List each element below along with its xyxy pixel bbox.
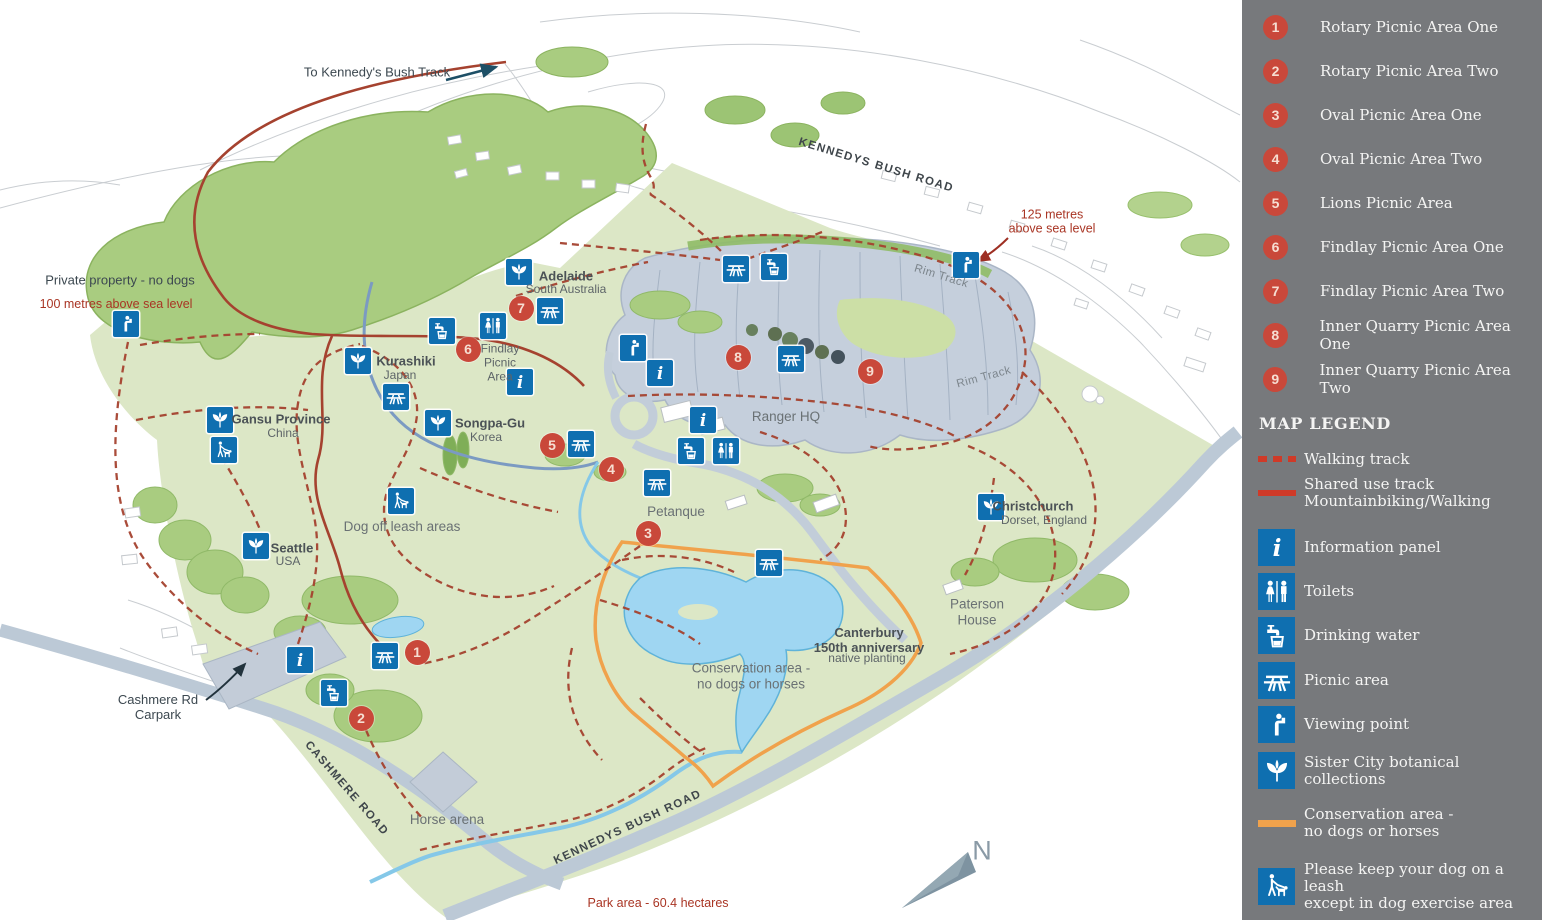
legend-item-botanic: Sister City botanical collections xyxy=(1242,752,1542,789)
legend-label: Drinking water xyxy=(1304,627,1419,644)
viewpoint-icon xyxy=(1258,706,1295,743)
legend-sidebar: 1Rotary Picnic Area One2Rotary Picnic Ar… xyxy=(1242,0,1542,920)
legend-item-viewpoint: Viewing point xyxy=(1242,706,1542,743)
botanic-icon xyxy=(1258,752,1295,789)
area-label: Findlay Picnic Area Two xyxy=(1320,282,1504,300)
area-number-badge: 2 xyxy=(1263,59,1288,84)
water-icon xyxy=(1258,617,1295,654)
map-legend-title: MAP LEGEND xyxy=(1259,414,1391,433)
picnic-area-legend-1: 1Rotary Picnic Area One xyxy=(1242,14,1542,40)
park-map-base-art xyxy=(0,0,1242,920)
area-label: Lions Picnic Area xyxy=(1320,194,1453,212)
area-label: Rotary Picnic Area One xyxy=(1320,18,1498,36)
picnic-area-legend-2: 2Rotary Picnic Area Two xyxy=(1242,58,1542,84)
legend-item-dog-leash: Please keep your dog on a leash except i… xyxy=(1242,867,1542,905)
legend-label: Conservation area - no dogs or horses xyxy=(1304,806,1453,840)
legend-item-toilets: Toilets xyxy=(1242,573,1542,610)
area-number-badge: 4 xyxy=(1263,147,1288,172)
legend-label: Walking track xyxy=(1304,451,1409,468)
area-number-badge: 1 xyxy=(1263,15,1288,40)
picnic-area-legend-7: 7Findlay Picnic Area Two xyxy=(1242,278,1542,304)
legend-item-walking-track: Walking track xyxy=(1242,449,1542,469)
map-canvas: 123456789 To Kennedy's Bush TrackKENNEDY… xyxy=(0,0,1242,920)
area-number-badge: 9 xyxy=(1263,367,1287,392)
area-label: Inner Quarry Picnic Area Two xyxy=(1319,361,1542,397)
legend-item-picnic: Picnic area xyxy=(1242,662,1542,699)
area-label: Inner Quarry Picnic Area One xyxy=(1320,317,1542,353)
legend-label: Information panel xyxy=(1304,539,1441,556)
legend-item-info: Information panel xyxy=(1242,529,1542,566)
area-label: Rotary Picnic Area Two xyxy=(1320,62,1499,80)
picnic-area-legend-5: 5Lions Picnic Area xyxy=(1242,190,1542,216)
area-label: Oval Picnic Area One xyxy=(1320,106,1482,124)
dog-leash-icon xyxy=(1258,868,1295,905)
picnic-area-legend-8: 8Inner Quarry Picnic Area One xyxy=(1242,322,1542,348)
area-number-badge: 8 xyxy=(1263,323,1288,348)
area-number-badge: 7 xyxy=(1263,279,1288,304)
area-number-badge: 5 xyxy=(1263,191,1288,216)
legend-item-conservation: Conservation area - no dogs or horses xyxy=(1242,804,1542,842)
legend-item-shared-track: Shared use track Mountainbiking/Walking xyxy=(1242,474,1542,512)
picnic-area-legend-9: 9Inner Quarry Picnic Area Two xyxy=(1242,366,1542,392)
picnic-area-legend-3: 3Oval Picnic Area One xyxy=(1242,102,1542,128)
area-number-badge: 3 xyxy=(1263,103,1288,128)
shared-track-swatch xyxy=(1258,490,1296,496)
legend-label: Shared use track Mountainbiking/Walking xyxy=(1304,476,1491,510)
walking-track-swatch xyxy=(1258,456,1296,462)
park-map-poster: 123456789 To Kennedy's Bush TrackKENNEDY… xyxy=(0,0,1542,920)
compass xyxy=(902,852,976,908)
legend-item-water: Drinking water xyxy=(1242,617,1542,654)
area-label: Oval Picnic Area Two xyxy=(1320,150,1482,168)
conservation-area-swatch xyxy=(1258,820,1296,827)
legend-label: Please keep your dog on a leash except i… xyxy=(1304,861,1542,912)
picnic-icon xyxy=(1258,662,1295,699)
legend-label: Toilets xyxy=(1304,583,1354,600)
area-number-badge: 6 xyxy=(1263,235,1288,260)
legend-label: Picnic area xyxy=(1304,672,1389,689)
info-icon xyxy=(1258,529,1295,566)
pond-island xyxy=(678,604,718,620)
picnic-area-legend-4: 4Oval Picnic Area Two xyxy=(1242,146,1542,172)
picnic-area-legend-6: 6Findlay Picnic Area One xyxy=(1242,234,1542,260)
toilets-icon xyxy=(1258,573,1295,610)
area-label: Findlay Picnic Area One xyxy=(1320,238,1504,256)
legend-label: Sister City botanical collections xyxy=(1304,754,1459,788)
legend-label: Viewing point xyxy=(1304,716,1409,733)
